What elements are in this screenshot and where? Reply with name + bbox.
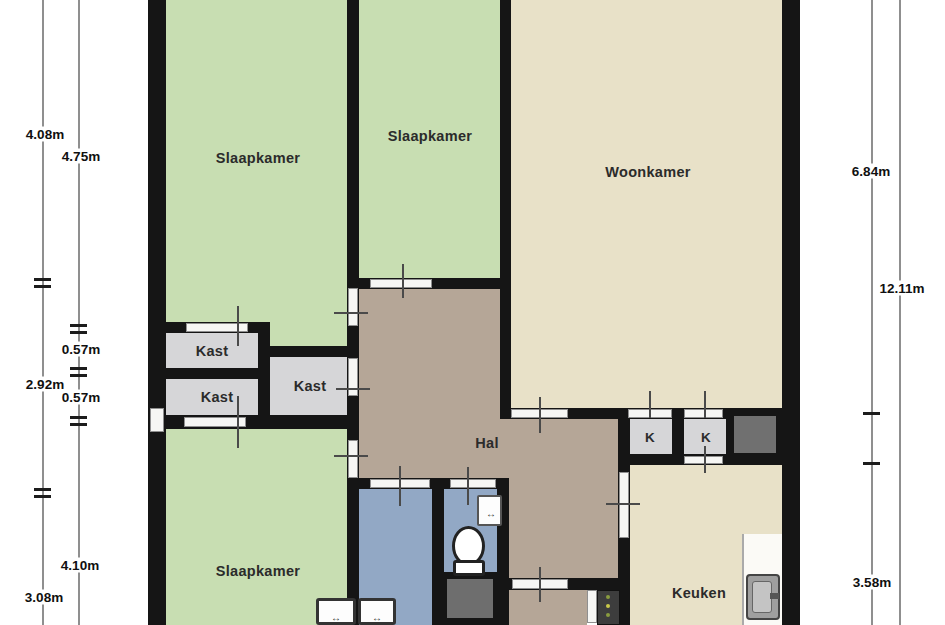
wall-kast1-kast2 [166, 368, 260, 379]
dimension-tick [70, 374, 87, 377]
door-swing-tick [539, 397, 541, 433]
sink-basin [752, 581, 772, 613]
toilet-base [453, 560, 485, 576]
room-label-slaapkamer-1: Slaapkamer [216, 150, 300, 166]
room-label-keuken: Keuken [672, 585, 726, 601]
room-woonkamer [511, 0, 782, 408]
meter-dots-icon [606, 613, 610, 617]
room-label-kast-1: Kast [196, 343, 229, 359]
dimension-label: 4.75m [60, 149, 102, 164]
door-swing-tick [467, 467, 469, 505]
dimension-tick [70, 331, 87, 334]
sink-faucet [770, 593, 779, 599]
dimension-label: 12.11m [877, 281, 926, 296]
room-label-slaapkamer-3: Slaapkamer [216, 563, 300, 579]
dimension-tick [70, 416, 87, 419]
door-opening-bed3-hal [348, 440, 358, 478]
door-opening-toilet [450, 479, 496, 488]
dimension-label: 3.08m [23, 590, 65, 605]
door-swing-tick [704, 391, 706, 418]
washer-icon: ↔ [316, 598, 356, 625]
door-swing-tick [237, 306, 239, 346]
shaft-toilet [447, 579, 493, 618]
dimension-line [871, 0, 873, 625]
door-swing-tick [649, 391, 651, 418]
dimension-tick [34, 278, 51, 281]
door-opening-meterkast [587, 590, 597, 623]
room-slaapkamer-3 [166, 428, 347, 625]
wall-k1-k2 [672, 416, 684, 458]
dimension-tick [70, 324, 87, 327]
dimension-tick [70, 423, 87, 426]
washer-arrow-icon: ↔ [331, 613, 341, 623]
wall-kast1-right [258, 322, 270, 426]
dimension-line [42, 0, 44, 625]
door-swing-tick [237, 396, 239, 448]
room-label-k-1: K [645, 430, 655, 445]
room-label-kast-2: Kast [201, 389, 234, 405]
door-swing-tick [334, 312, 368, 314]
dimension-label: 4.08m [24, 127, 66, 142]
dimension-line [78, 0, 80, 625]
meter-cabinet [597, 590, 620, 625]
dimension-tick [863, 462, 880, 465]
dimension-line [899, 0, 901, 625]
dimension-label: 0.57m [60, 342, 102, 357]
door-swing-tick [334, 455, 368, 457]
door-opening-bed1 [348, 288, 358, 326]
washer-icon: ↔ [358, 598, 396, 625]
dimension-label: 3.58m [851, 575, 893, 590]
washer-arrow-icon: ↔ [372, 613, 382, 623]
room-label-k-2: K [701, 430, 711, 445]
door-opening-kast3 [348, 358, 358, 396]
room-label-kast-3: Kast [294, 378, 327, 394]
meter-dots-icon [606, 604, 610, 608]
dimension-tick [34, 285, 51, 288]
wall-bed2-woonkamer [500, 0, 511, 418]
room-hal-entry [509, 590, 587, 625]
room-hal-lower [500, 418, 618, 578]
door-swing-tick [336, 388, 370, 390]
meter-dots-icon [606, 595, 610, 599]
door-swing-tick [539, 567, 541, 602]
wall-outer-right [782, 0, 800, 625]
room-label-slaapkamer-2: Slaapkamer [388, 128, 472, 144]
basin-arrow-icon: ↔ [486, 509, 496, 519]
dimension-tick [863, 412, 880, 415]
window-marker [150, 408, 164, 432]
dimension-label: 6.84m [850, 164, 892, 179]
wall-outer-left [148, 0, 166, 625]
dimension-tick [70, 367, 87, 370]
dimension-label: 0.57m [60, 390, 102, 405]
wall-kast3-top [270, 346, 359, 357]
kitchen-sink-icon [746, 574, 780, 620]
dimension-tick [34, 488, 51, 491]
room-label-woonkamer: Woonkamer [605, 164, 690, 180]
floorplan-canvas: ↔ ↔ ↔ 4.08m 4.75m 0.57m 2.92m 0.57m 4.10… [0, 0, 945, 625]
door-swing-tick [399, 466, 401, 506]
door-swing-tick [606, 503, 640, 505]
hand-basin-icon: ↔ [477, 495, 502, 526]
dimension-label: 4.10m [59, 558, 101, 573]
shaft-right [734, 416, 776, 453]
door-swing-tick [402, 264, 404, 298]
door-opening-keuken [619, 472, 629, 538]
room-slaapkamer-1 [166, 0, 347, 352]
dimension-tick [34, 495, 51, 498]
room-label-hal: Hal [475, 435, 498, 451]
door-opening-bed2 [370, 279, 432, 288]
door-swing-tick [704, 446, 706, 473]
